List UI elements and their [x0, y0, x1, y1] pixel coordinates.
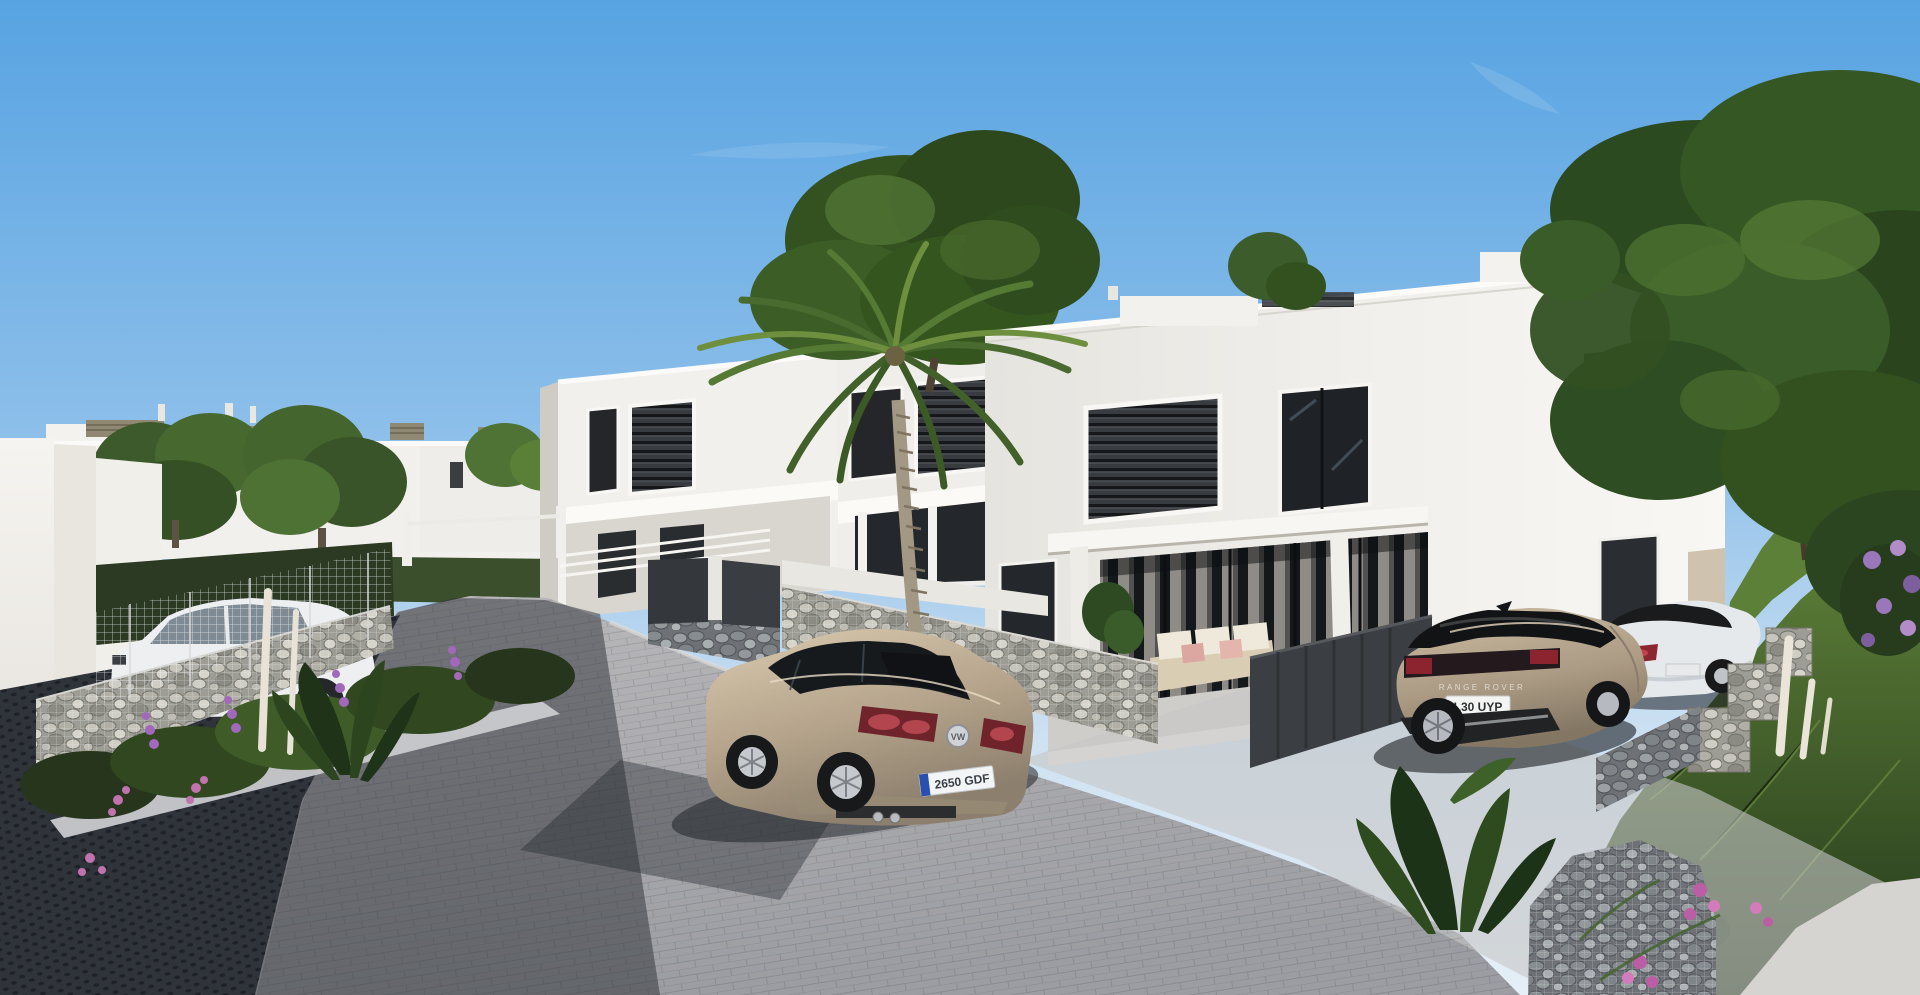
white-pillar [708, 556, 722, 620]
render-canvas: VW 2650 GDF RANGE ROVER L30 UYP [0, 0, 1920, 995]
rooftop-tree [1266, 262, 1326, 310]
upper-window [588, 407, 618, 494]
louvred-shutter [630, 400, 694, 494]
louvred-window [1086, 396, 1220, 522]
vw-badge-letters: VW [951, 732, 966, 742]
pink-cushion [1181, 643, 1205, 663]
glass-door [598, 530, 636, 598]
gate-post [402, 514, 412, 566]
corner-window [1280, 384, 1370, 514]
distant-door [450, 462, 463, 488]
dark-fence-panel [722, 560, 780, 628]
pink-cushion [1219, 639, 1243, 659]
range-rover-lettering: RANGE ROVER [1439, 683, 1526, 692]
dark-fence-panel [648, 558, 708, 624]
license-plate [1666, 664, 1700, 676]
gate-post [556, 506, 566, 558]
palm-crown [885, 346, 905, 366]
scene-svg: VW 2650 GDF RANGE ROVER L30 UYP [0, 0, 1920, 995]
